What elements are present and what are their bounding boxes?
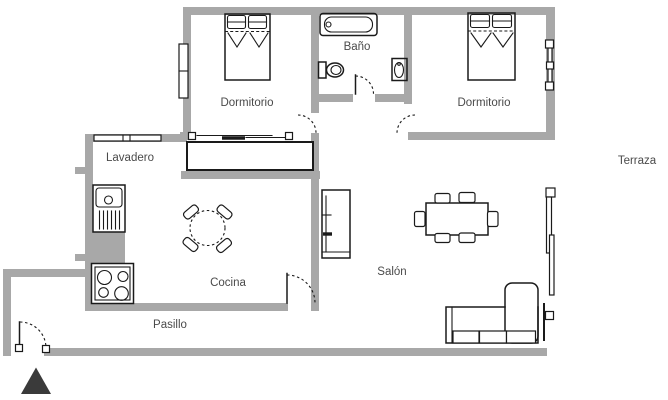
- entrance-arrow-marker: [21, 368, 51, 395]
- table-top: [190, 211, 225, 246]
- chair: [216, 204, 233, 220]
- chair: [182, 236, 199, 252]
- slider-panel-2: [550, 235, 555, 295]
- chair: [435, 194, 450, 204]
- built-in-wardrobe: [187, 133, 313, 171]
- bedroom2-double-bed: [468, 13, 515, 80]
- wall-stub-upper: [75, 167, 86, 174]
- bedroom2-door-swing: [397, 115, 415, 133]
- room-label-terrace: Terraza: [607, 155, 667, 168]
- bathroom-door: [356, 75, 374, 94]
- dining-table: [426, 203, 488, 235]
- kitchen-counter-block: [93, 232, 125, 264]
- wall-hallway-west: [3, 269, 11, 356]
- room-label-laundry: Lavadero: [99, 152, 161, 165]
- chair: [459, 233, 475, 243]
- walls: [3, 7, 555, 356]
- kitchen-sink-unit: [93, 185, 125, 232]
- room-label-bedroom-right: Dormitorio: [442, 97, 526, 110]
- bedroom2-window: [546, 40, 554, 90]
- bed-frame: [225, 14, 270, 80]
- toilet: [319, 62, 344, 78]
- wardrobe-body: [187, 142, 313, 170]
- sofa-cushion: [453, 331, 479, 343]
- room-label-living-room: Salón: [362, 266, 422, 279]
- wall-bathroom-east: [404, 7, 412, 104]
- room-label-hallway: Pasillo: [141, 319, 199, 332]
- sofa-cushion: [480, 331, 507, 343]
- wall-bottom: [44, 348, 547, 356]
- terrace-sliding-door: [543, 188, 555, 341]
- dining-table-set: [415, 193, 499, 243]
- chair: [435, 234, 450, 243]
- bedroom1-double-bed: [225, 14, 270, 80]
- wardrobe-jamb-left: [189, 133, 196, 140]
- bedroom1-door-swing: [298, 115, 316, 133]
- blanket-fold: [228, 33, 246, 47]
- living-room-furniture: [322, 190, 538, 343]
- wall-kitchen-north: [181, 171, 320, 179]
- room-label-bedroom-left: Dormitorio: [205, 97, 289, 110]
- laundry-window: [94, 135, 161, 141]
- wardrobe-jamb-right: [286, 133, 293, 140]
- wall-bedroom2-south: [408, 132, 555, 140]
- slider-side-rail: [543, 303, 545, 341]
- stove-cooktop: [92, 264, 134, 304]
- room-label-bathroom: Baño: [337, 41, 377, 54]
- bathtub: [320, 14, 377, 36]
- room-label-kitchen: Cocina: [198, 277, 258, 290]
- slider-jamb-top: [546, 188, 555, 197]
- chair: [215, 237, 232, 253]
- kitchen-door: [287, 274, 315, 304]
- entrance-door: [16, 322, 50, 353]
- corner-sofa: [446, 283, 538, 343]
- kitchen-round-table: [182, 204, 233, 254]
- slider-jamb-bottom: [546, 312, 554, 320]
- chair: [459, 193, 475, 203]
- chair: [488, 212, 499, 227]
- wall-hallway-north: [3, 269, 88, 277]
- wall-bathroom-south-right: [375, 94, 412, 102]
- bedroom1-window: [179, 44, 188, 98]
- chair: [415, 212, 426, 227]
- chair: [182, 204, 199, 220]
- blanket-fold: [250, 33, 268, 47]
- sofa-cushion: [507, 331, 536, 343]
- floor-plan-drawing: [0, 0, 668, 400]
- sideboard-shelf: [322, 190, 350, 258]
- floor-plan: Dormitorio Baño Dormitorio Terraza Lavad…: [0, 0, 668, 400]
- blanket-fold: [493, 33, 513, 47]
- blanket-fold: [471, 33, 491, 47]
- wall-bathroom-south-left: [311, 94, 353, 102]
- bed-frame: [468, 13, 515, 80]
- wall-stub-lower: [75, 254, 86, 261]
- windows: [94, 40, 554, 141]
